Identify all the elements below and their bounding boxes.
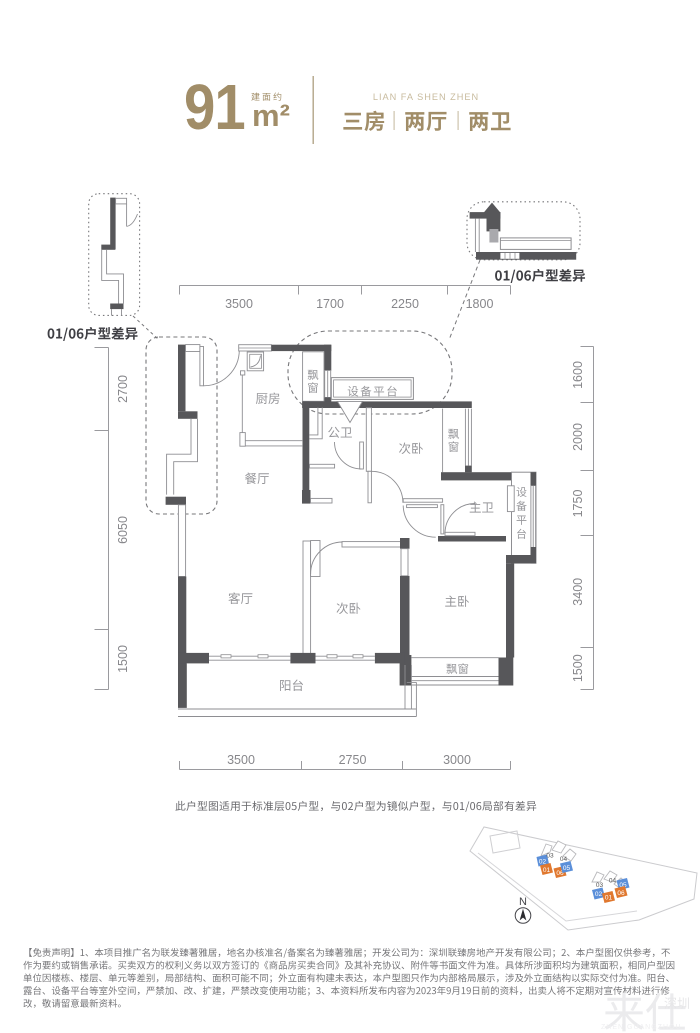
svg-text:LIAN FA SHEN ZHEN: LIAN FA SHEN ZHEN bbox=[373, 92, 479, 102]
svg-text:01: 01 bbox=[605, 895, 613, 902]
svg-text:3400: 3400 bbox=[571, 578, 585, 606]
svg-text:1600: 1600 bbox=[571, 361, 585, 389]
svg-text:2750: 2750 bbox=[339, 753, 367, 767]
svg-text:6050: 6050 bbox=[116, 516, 130, 544]
svg-text:91: 91 bbox=[184, 71, 245, 143]
svg-text:m²: m² bbox=[252, 98, 290, 133]
svg-text:04: 04 bbox=[609, 878, 617, 885]
svg-text:3500: 3500 bbox=[227, 753, 255, 767]
svg-text:ZHEN GUANGZHOU: ZHEN GUANGZHOU bbox=[601, 1024, 682, 1031]
svg-text:3000: 3000 bbox=[443, 753, 471, 767]
svg-text:1500: 1500 bbox=[116, 645, 130, 673]
svg-text:02: 02 bbox=[595, 891, 603, 898]
svg-text:3500: 3500 bbox=[225, 297, 253, 311]
svg-text:2000: 2000 bbox=[571, 423, 585, 451]
svg-text:1750: 1750 bbox=[571, 490, 585, 518]
svg-text:05: 05 bbox=[563, 865, 571, 872]
svg-text:2700: 2700 bbox=[116, 375, 130, 403]
svg-text:1800: 1800 bbox=[466, 297, 494, 311]
svg-text:01: 01 bbox=[543, 867, 551, 874]
svg-text:1500: 1500 bbox=[571, 654, 585, 682]
svg-text:2250: 2250 bbox=[391, 297, 419, 311]
svg-text:1700: 1700 bbox=[316, 297, 344, 311]
svg-text:04: 04 bbox=[560, 856, 568, 863]
svg-text:06: 06 bbox=[617, 890, 625, 897]
svg-text:N: N bbox=[519, 896, 527, 908]
svg-text:03: 03 bbox=[546, 853, 554, 860]
